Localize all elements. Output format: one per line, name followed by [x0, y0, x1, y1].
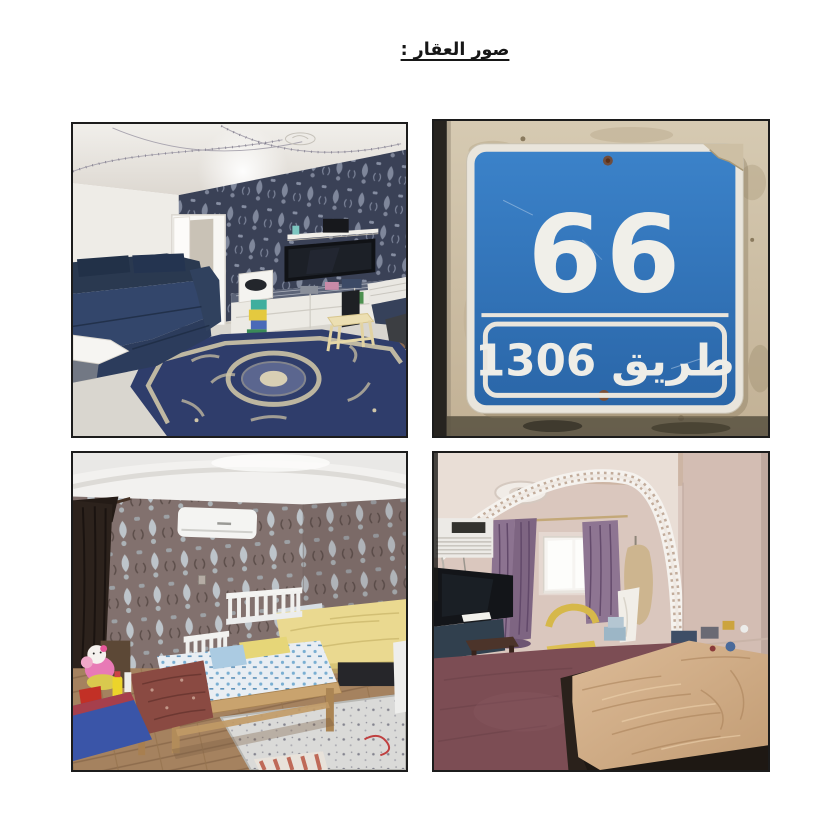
- photo-caption: Children's bedroom with mauve damask wal…: [73, 770, 74, 771]
- living-room-illustration: [73, 124, 406, 436]
- photo-master-bedroom: Bedroom with decorative white arch, wind…: [432, 451, 770, 772]
- white-side-rail: [393, 641, 406, 714]
- photo-caption: Blue metal building-number plate with wh…: [434, 436, 435, 437]
- road-label: طريق 1306: [475, 337, 735, 387]
- ac-unit: [177, 507, 257, 539]
- left-shadow-strip: [434, 121, 447, 436]
- leaning-picture: [239, 270, 273, 303]
- page-title: صور العقار :: [401, 40, 510, 60]
- photo-caption: Bedroom with decorative white arch, wind…: [434, 770, 435, 771]
- kids-bedroom-illustration: [73, 453, 406, 770]
- bottom-shadow-band: [447, 416, 768, 436]
- building-number: 66: [528, 193, 684, 317]
- photo-living-room: Living room with dark blue sofa, navy da…: [71, 122, 408, 438]
- photo-caption: Living room with dark blue sofa, navy da…: [73, 436, 74, 437]
- photo-kids-bedroom: Children's bedroom with mauve damask wal…: [71, 451, 408, 772]
- street-sign-illustration: 66 طريق 1306: [434, 121, 768, 436]
- teal-cup: [292, 226, 299, 235]
- power-outlet: [198, 575, 205, 584]
- master-bedroom-illustration: [434, 453, 768, 770]
- photo-street-sign: 66 طريق 1306 Blue metal building-number …: [432, 119, 770, 438]
- number-sign-plate: 66 طريق 1306: [467, 144, 749, 418]
- dark-bed-base: [338, 662, 401, 686]
- black-box-on-shelf: [323, 219, 349, 233]
